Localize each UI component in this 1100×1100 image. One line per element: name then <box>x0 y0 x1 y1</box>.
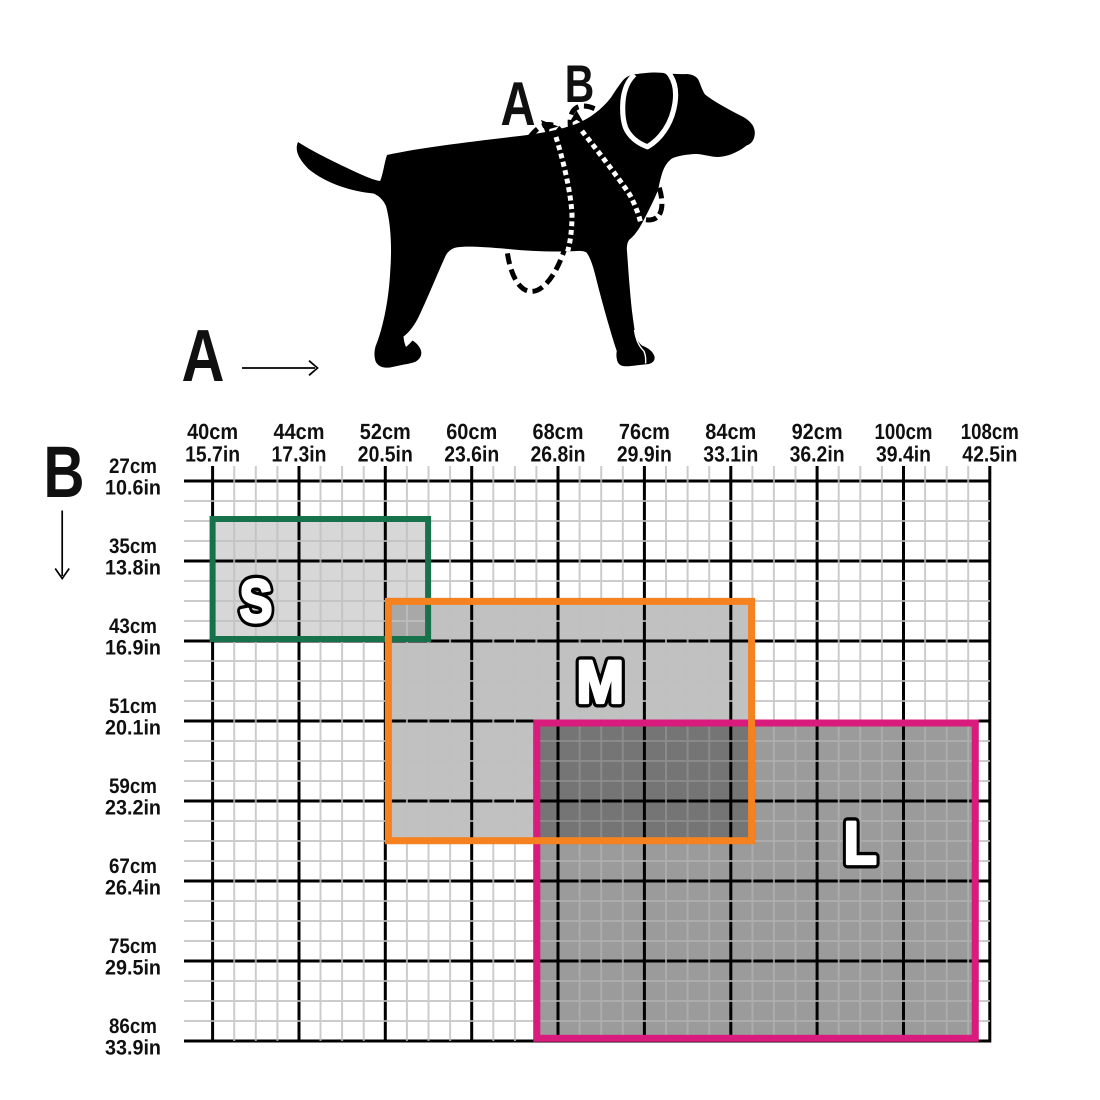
svg-text:33.9in: 33.9in <box>105 1037 161 1060</box>
svg-text:10.6in: 10.6in <box>105 477 161 500</box>
svg-text:52cm: 52cm <box>360 419 411 444</box>
svg-text:33.1in: 33.1in <box>703 441 758 466</box>
svg-text:100cm: 100cm <box>875 419 933 444</box>
svg-text:16.9in: 16.9in <box>105 637 161 660</box>
svg-text:26.4in: 26.4in <box>105 877 161 900</box>
svg-text:75cm: 75cm <box>109 935 157 958</box>
svg-text:29.9in: 29.9in <box>617 441 672 466</box>
svg-text:92cm: 92cm <box>792 419 843 444</box>
svg-text:68cm: 68cm <box>533 419 584 444</box>
svg-text:27cm: 27cm <box>109 455 157 478</box>
svg-text:S: S <box>240 568 273 635</box>
svg-text:23.2in: 23.2in <box>105 797 161 820</box>
svg-text:39.4in: 39.4in <box>876 441 931 466</box>
svg-text:20.5in: 20.5in <box>358 441 413 466</box>
svg-text:A: A <box>182 314 225 397</box>
svg-text:60cm: 60cm <box>446 419 497 444</box>
svg-text:35cm: 35cm <box>109 535 157 558</box>
svg-text:M: M <box>577 649 625 716</box>
svg-text:29.5in: 29.5in <box>105 957 161 980</box>
svg-text:40cm: 40cm <box>187 419 238 444</box>
svg-text:20.1in: 20.1in <box>105 717 161 740</box>
svg-text:86cm: 86cm <box>109 1015 157 1038</box>
svg-text:B: B <box>565 55 595 114</box>
svg-text:L: L <box>844 810 877 877</box>
svg-text:17.3in: 17.3in <box>272 441 327 466</box>
svg-text:36.2in: 36.2in <box>790 441 845 466</box>
svg-text:108cm: 108cm <box>961 419 1019 444</box>
svg-text:26.8in: 26.8in <box>531 441 586 466</box>
svg-text:59cm: 59cm <box>109 775 157 798</box>
svg-text:A: A <box>501 70 536 139</box>
svg-text:84cm: 84cm <box>705 419 756 444</box>
svg-text:42.5in: 42.5in <box>962 441 1017 466</box>
svg-text:15.7in: 15.7in <box>185 441 240 466</box>
svg-text:23.6in: 23.6in <box>444 441 499 466</box>
svg-text:B: B <box>44 432 85 513</box>
svg-text:51cm: 51cm <box>109 695 157 718</box>
svg-text:76cm: 76cm <box>619 419 670 444</box>
svg-text:43cm: 43cm <box>109 615 157 638</box>
svg-text:67cm: 67cm <box>109 855 157 878</box>
svg-text:13.8in: 13.8in <box>105 557 161 580</box>
svg-text:44cm: 44cm <box>274 419 325 444</box>
